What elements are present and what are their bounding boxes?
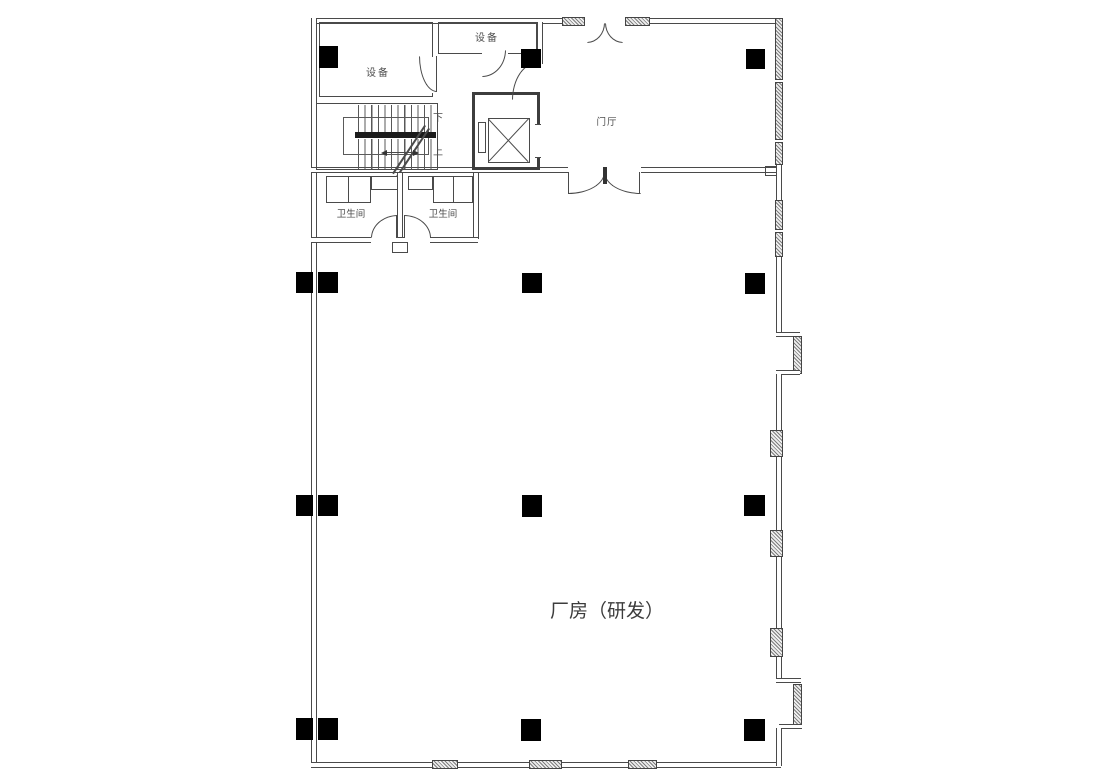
wall-right-seg-6 bbox=[776, 657, 782, 678]
column bbox=[319, 46, 338, 68]
column bbox=[521, 719, 541, 741]
window-bottom-2 bbox=[529, 760, 562, 769]
wall-mid-right bbox=[641, 167, 777, 173]
wall-right-seg-2 bbox=[776, 257, 782, 332]
window-right-3 bbox=[770, 628, 783, 657]
toilet-left-door-arc bbox=[371, 215, 398, 238]
equipment-small-label: 设备 bbox=[467, 29, 507, 44]
wall-right-hatch-1 bbox=[775, 18, 783, 80]
foyer-label: 门厅 bbox=[592, 114, 622, 128]
window-right-2 bbox=[770, 530, 783, 557]
toilet-left-door-leaf bbox=[396, 215, 397, 238]
wall-right-hatch-5 bbox=[775, 232, 783, 257]
toilet-right-label: 卫生间 bbox=[422, 206, 464, 220]
stair-arrow-line bbox=[387, 152, 413, 153]
equipment-small-door-arc bbox=[482, 50, 506, 77]
bay-2-window bbox=[793, 684, 802, 726]
elevator-opening-tick-bottom bbox=[535, 157, 541, 158]
toilet-left-stall-divider bbox=[348, 176, 349, 203]
hall-door-left-arc bbox=[568, 172, 605, 194]
column bbox=[744, 495, 765, 516]
stair-down-label: 下 bbox=[433, 109, 443, 124]
column bbox=[522, 273, 542, 293]
entrance-door-left-arc bbox=[587, 23, 605, 43]
column bbox=[744, 719, 765, 741]
equipment-main-label: 设备 bbox=[358, 64, 398, 79]
column bbox=[296, 495, 313, 516]
bay-2-top bbox=[776, 678, 801, 683]
hall-door-right-arc bbox=[604, 172, 641, 194]
wall-right-seg-5 bbox=[776, 557, 782, 628]
wall-right-seg-3 bbox=[776, 374, 782, 430]
elevator-opening bbox=[535, 124, 541, 158]
column bbox=[521, 49, 541, 68]
window-bottom-1 bbox=[432, 760, 458, 769]
column bbox=[318, 718, 338, 740]
toilet-bottom-wall-1 bbox=[311, 237, 371, 243]
wall-right-seg-4 bbox=[776, 457, 782, 530]
toilet-right-stall-divider bbox=[453, 176, 454, 203]
toilet-left-counter bbox=[371, 176, 398, 190]
window-top-2 bbox=[625, 17, 650, 26]
column bbox=[318, 495, 338, 516]
toilet-right-door-leaf bbox=[404, 215, 405, 238]
toilet-bottom-wall-3 bbox=[430, 237, 478, 243]
elevator-door-panel bbox=[478, 122, 486, 153]
column bbox=[745, 273, 765, 294]
bay-1-window bbox=[793, 336, 802, 374]
column bbox=[318, 272, 338, 293]
toilet-left-label: 卫生间 bbox=[330, 206, 372, 220]
wall-right-hatch-4 bbox=[775, 200, 783, 230]
window-top-1 bbox=[562, 17, 585, 26]
column bbox=[522, 495, 542, 517]
stair-arrow-head-right bbox=[413, 150, 419, 156]
floor-plan: 下 上 设备 设备 门厅 卫生间 卫 bbox=[0, 0, 1100, 778]
wall-top-right bbox=[650, 18, 777, 24]
column bbox=[746, 49, 765, 69]
stair-up-label: 上 bbox=[433, 143, 443, 158]
hall-door-left-leaf bbox=[568, 172, 569, 194]
column bbox=[296, 718, 313, 740]
hall-door-center-stub bbox=[603, 167, 607, 184]
window-bottom-3 bbox=[628, 760, 657, 769]
wall-right-hatch-3 bbox=[775, 142, 783, 165]
entrance-door-right-arc bbox=[605, 23, 623, 43]
column bbox=[296, 272, 313, 293]
wall-notch bbox=[765, 166, 777, 176]
workshop-label: 厂房（研发） bbox=[542, 596, 672, 623]
bay-2-bottom bbox=[779, 724, 802, 729]
toilet-right-wall bbox=[473, 173, 479, 239]
elevator-opening-tick-top bbox=[535, 124, 541, 125]
wall-right-seg-7 bbox=[776, 728, 782, 766]
equipment-main-door-leaf bbox=[436, 56, 437, 92]
toilet-partition-stub bbox=[392, 242, 408, 253]
window-right-1 bbox=[770, 430, 783, 457]
wall-right-hatch-2 bbox=[775, 82, 783, 140]
stair-arrow-head-left bbox=[381, 150, 387, 156]
toilet-right-counter bbox=[408, 176, 433, 190]
hall-door-right-leaf bbox=[639, 172, 640, 194]
